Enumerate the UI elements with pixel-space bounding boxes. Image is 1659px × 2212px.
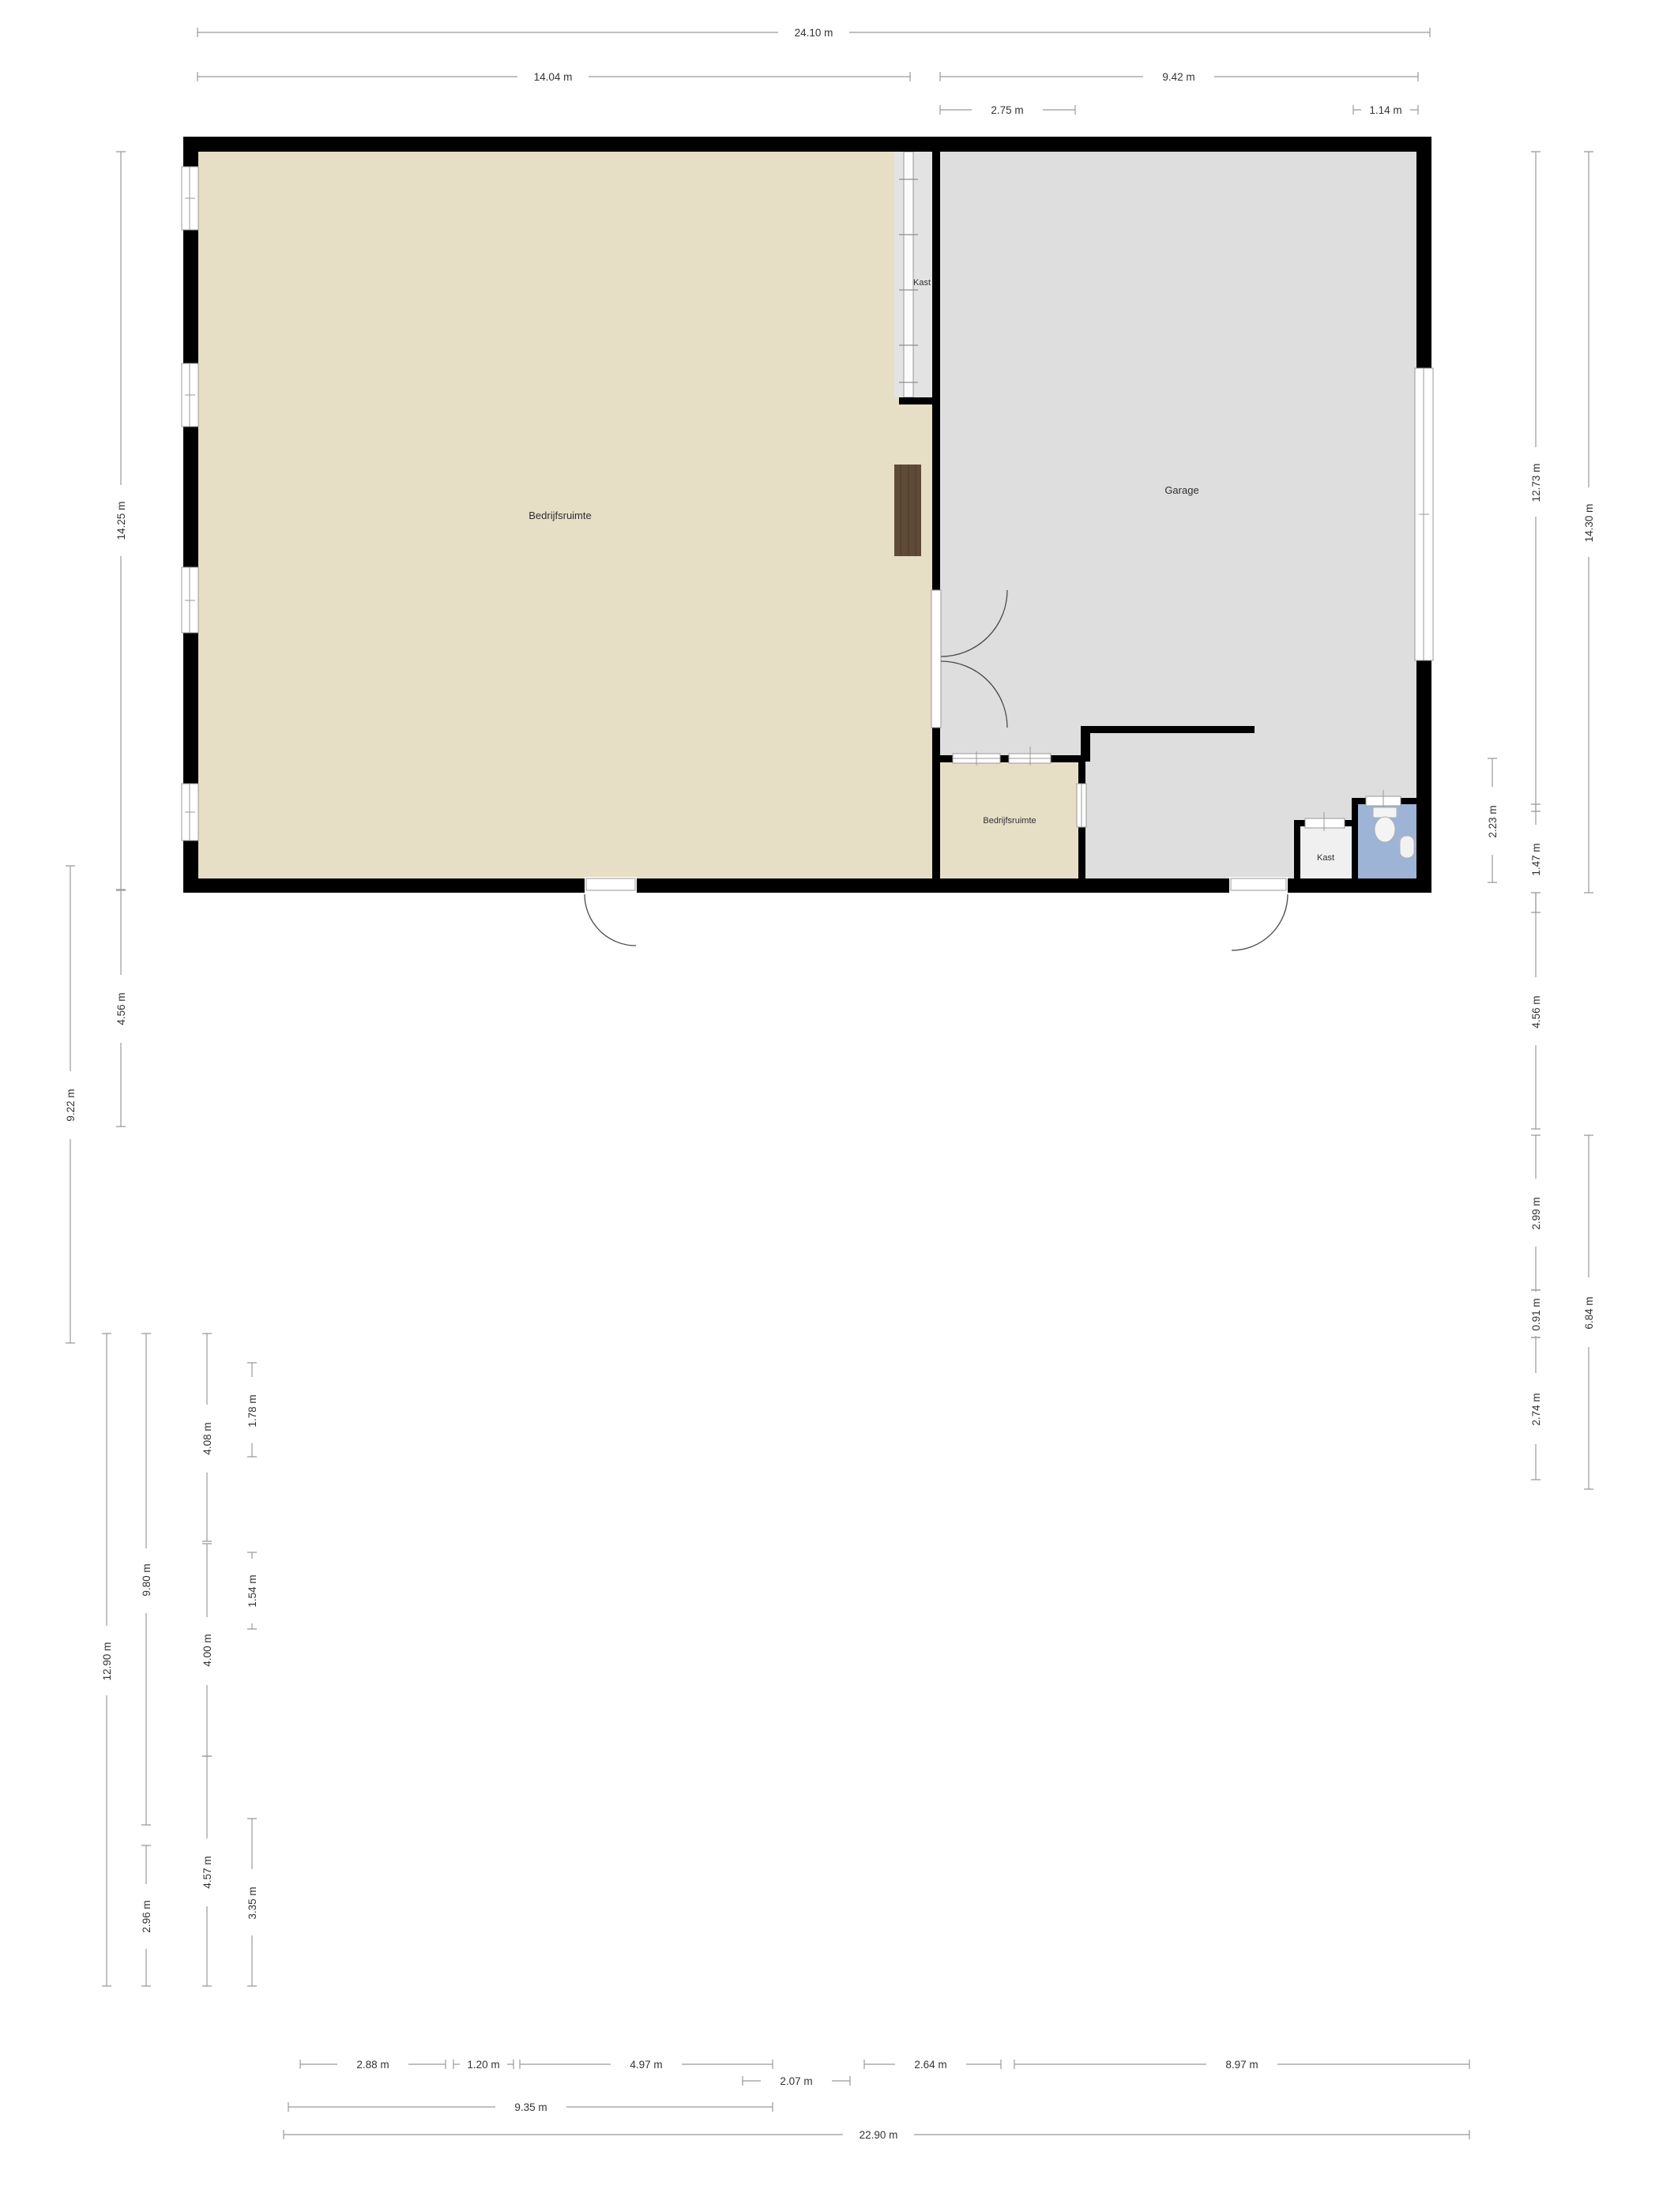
svg-text:1.47 m: 1.47 m [1530,843,1542,875]
svg-text:2.75 m: 2.75 m [991,104,1023,116]
svg-text:14.25 m: 14.25 m [115,502,127,540]
svg-text:4.00 m: 4.00 m [201,1634,213,1666]
svg-text:Kast: Kast [913,278,931,288]
svg-text:12.90 m: 12.90 m [101,1642,113,1681]
svg-text:22.90 m: 22.90 m [860,2129,898,2141]
svg-text:Kast: Kast [1317,853,1334,863]
svg-text:14.30 m: 14.30 m [1583,504,1595,543]
svg-text:9.22 m: 9.22 m [65,1089,77,1121]
svg-text:1.54 m: 1.54 m [246,1574,258,1607]
svg-text:1.78 m: 1.78 m [246,1394,258,1427]
svg-text:14.04 m: 14.04 m [534,71,573,83]
svg-text:8.97 m: 8.97 m [1225,2059,1258,2071]
svg-text:2.64 m: 2.64 m [914,2059,946,2071]
svg-text:Bedrijfsruimte: Bedrijfsruimte [529,510,591,521]
svg-text:2.88 m: 2.88 m [356,2059,389,2071]
svg-text:0.91 m: 0.91 m [1530,1298,1542,1330]
svg-text:24.10 m: 24.10 m [795,27,833,39]
svg-text:Bedrijfsruimte: Bedrijfsruimte [983,816,1036,826]
svg-text:3.35 m: 3.35 m [246,1887,258,1919]
svg-text:4.56 m: 4.56 m [1530,995,1542,1028]
svg-text:9.42 m: 9.42 m [1162,71,1194,83]
svg-text:2.74 m: 2.74 m [1530,1393,1542,1425]
svg-text:2.99 m: 2.99 m [1530,1197,1542,1229]
svg-text:9.35 m: 9.35 m [514,2101,547,2113]
svg-text:4.08 m: 4.08 m [201,1422,213,1454]
svg-text:12.73 m: 12.73 m [1530,464,1542,502]
svg-text:2.07 m: 2.07 m [780,2075,812,2087]
svg-text:1.14 m: 1.14 m [1369,104,1401,116]
svg-text:6.84 m: 6.84 m [1583,1296,1595,1329]
svg-text:2.96 m: 2.96 m [141,1900,152,1932]
svg-text:4.97 m: 4.97 m [630,2059,662,2071]
svg-text:1.20 m: 1.20 m [467,2059,499,2071]
svg-text:2.23 m: 2.23 m [1487,805,1499,837]
svg-text:4.56 m: 4.56 m [115,992,127,1025]
svg-text:4.57 m: 4.57 m [201,1856,213,1888]
svg-text:9.80 m: 9.80 m [141,1563,152,1596]
svg-text:Garage: Garage [1164,484,1198,496]
